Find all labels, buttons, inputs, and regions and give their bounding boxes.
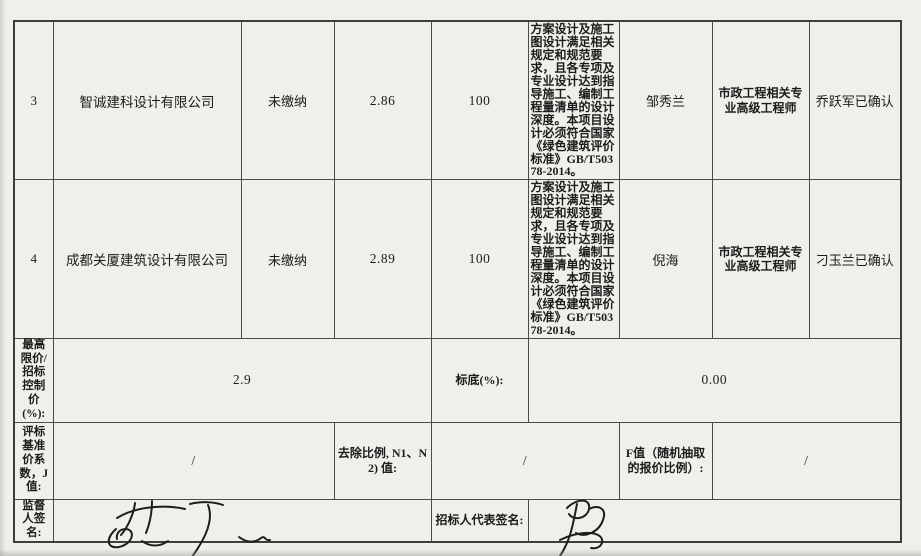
removal-ratio-value: / — [431, 422, 619, 499]
j-value: / — [53, 422, 334, 499]
scanned-document-page: 3 智诚建科设计有限公司 未缴纳 2.86 100 方案设计及施工图设计满足相关… — [0, 0, 921, 556]
expert-name: 邹秀兰 — [619, 21, 712, 180]
bidder-representative-signature — [545, 494, 645, 556]
supervisor-signature-cell — [53, 499, 431, 542]
expert-name: 倪海 — [619, 180, 712, 338]
base-price-value: 0.00 — [528, 338, 901, 422]
table-row: 4 成都关厦建筑设计有限公司 未缴纳 2.89 100 方案设计及施工图设计满足… — [14, 180, 901, 338]
row-number: 3 — [14, 21, 53, 180]
confirmation-status: 刁玉兰已确认 — [809, 180, 901, 338]
score: 100 — [431, 21, 528, 180]
limit-price-label: 最高限价/招标控制价(%): — [14, 338, 53, 422]
expert-title: 市政工程相关专业高级工程师 — [712, 21, 809, 180]
deposit-status: 未缴纳 — [241, 21, 334, 180]
bidder-company-name: 成都关厦建筑设计有限公司 — [53, 180, 241, 338]
scan-edge-shadow-left — [0, 0, 6, 556]
bidder-company-name: 智诚建科设计有限公司 — [53, 21, 241, 180]
bidder-representative-signature-cell — [528, 499, 901, 542]
bid-price: 2.89 — [334, 180, 431, 338]
removal-ratio-label: 去除比例, N1、N2) 值: — [334, 422, 431, 499]
score: 100 — [431, 180, 528, 338]
limit-price-row: 最高限价/招标控制价(%): 2.9 标底(%): 0.00 — [14, 338, 901, 422]
f-value-label: F值（随机抽取的报价比例）: — [619, 422, 712, 499]
supervisor-signature-label: 监督人签名: — [14, 499, 53, 542]
design-criteria-text: 方案设计及施工图设计满足相关规定和规范要求，且各专项及专业设计达到指导施工、编制… — [528, 21, 619, 180]
confirmation-status: 乔跃军已确认 — [809, 21, 901, 180]
coefficient-row: 评标基准价系数，J值: / 去除比例, N1、N2) 值: / F值（随机抽取的… — [14, 422, 901, 499]
supervisor-signature — [89, 494, 289, 556]
scan-edge-shadow-bottom — [0, 549, 921, 556]
bid-evaluation-table: 3 智诚建科设计有限公司 未缴纳 2.86 100 方案设计及施工图设计满足相关… — [13, 20, 902, 543]
base-price-label: 标底(%): — [431, 338, 528, 422]
bidder-representative-signature-label: 招标人代表签名: — [431, 499, 528, 542]
row-number: 4 — [14, 180, 53, 338]
bid-price: 2.86 — [334, 21, 431, 180]
limit-price-value: 2.9 — [53, 338, 431, 422]
f-value: / — [712, 422, 901, 499]
expert-title: 市政工程相关专业高级工程师 — [712, 180, 809, 338]
benchmark-coefficient-label: 评标基准价系数，J值: — [14, 422, 53, 499]
signature-row: 监督人签名: 招标人代表签名: — [14, 499, 901, 542]
table-row: 3 智诚建科设计有限公司 未缴纳 2.86 100 方案设计及施工图设计满足相关… — [14, 21, 901, 180]
deposit-status: 未缴纳 — [241, 180, 334, 338]
design-criteria-text: 方案设计及施工图设计满足相关规定和规范要求，且各专项及专业设计达到指导施工、编制… — [528, 180, 619, 338]
